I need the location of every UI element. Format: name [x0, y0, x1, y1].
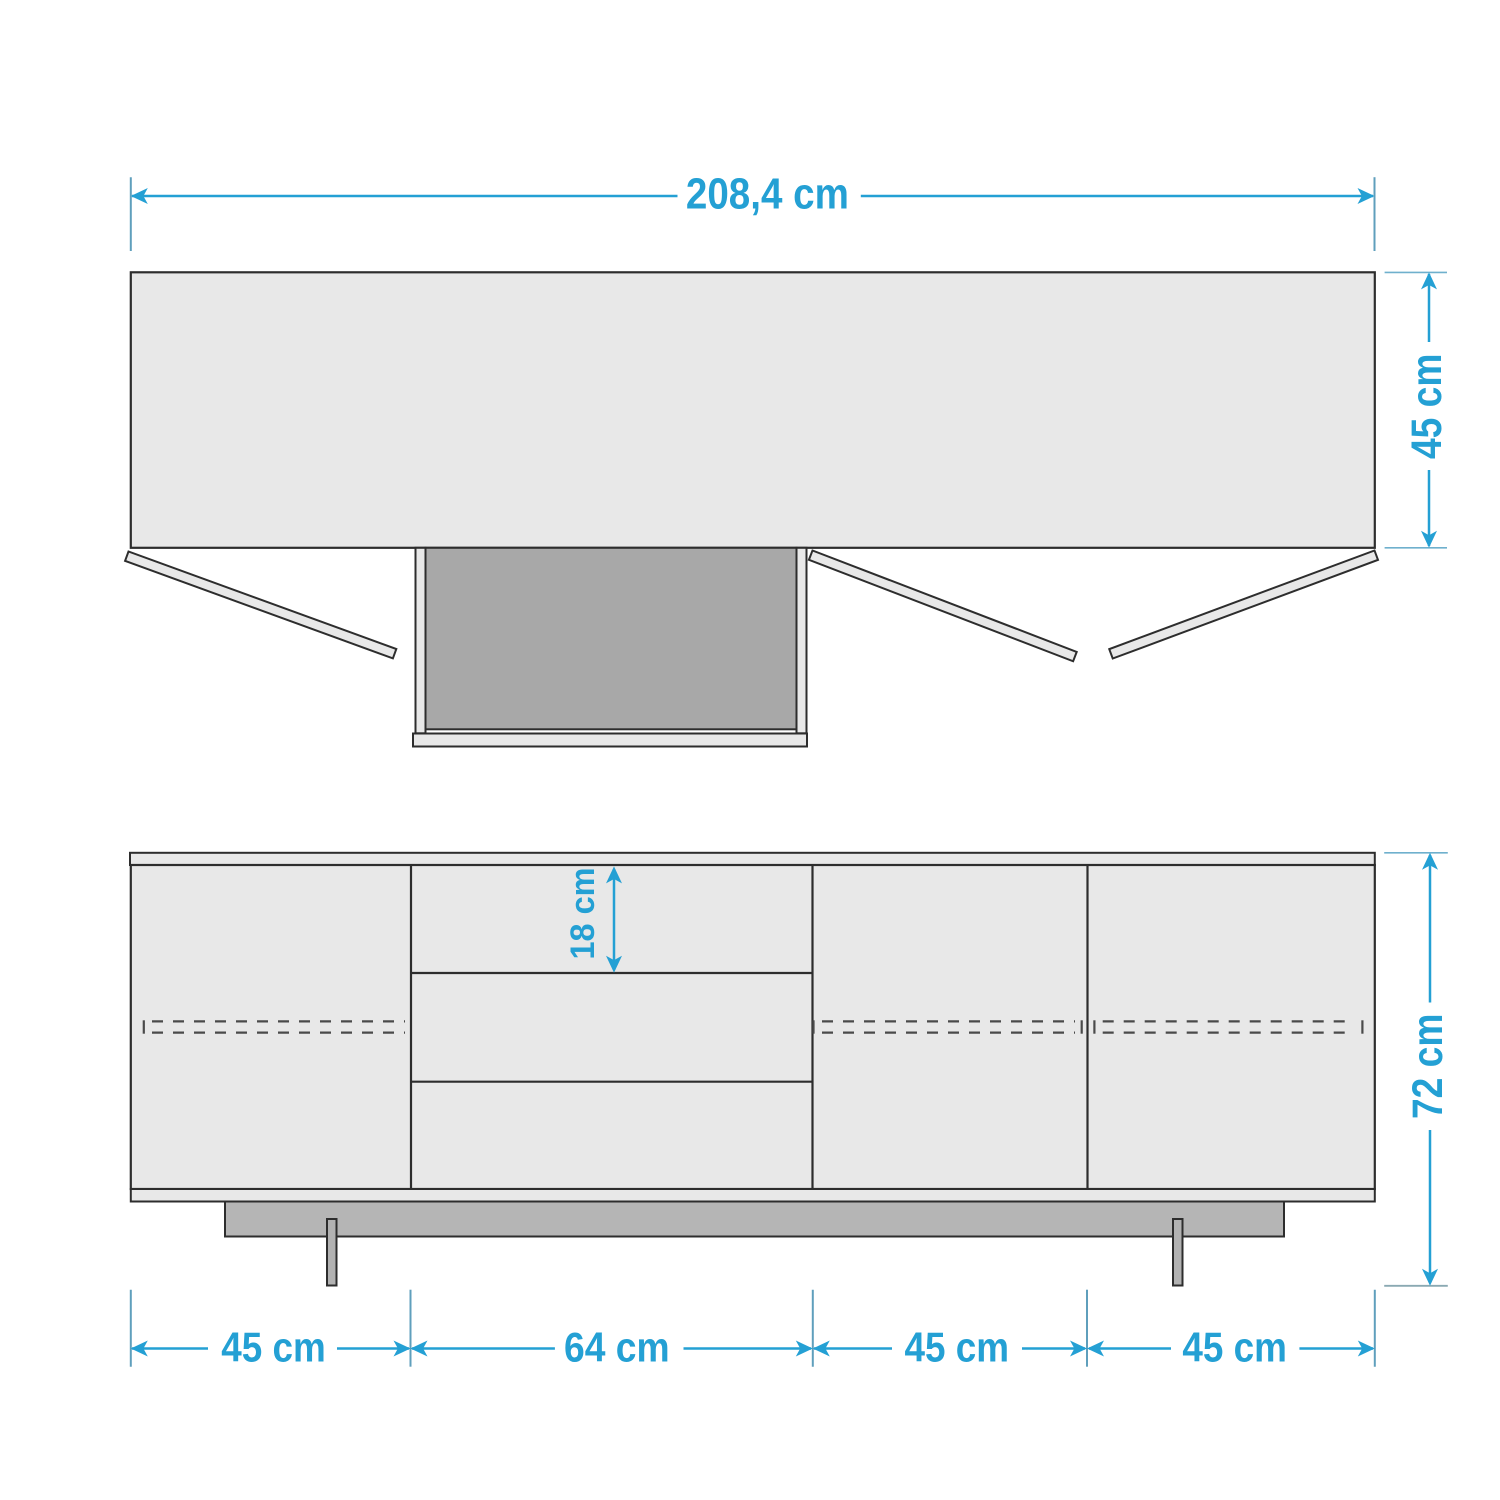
svg-text:64 cm: 64 cm — [564, 1324, 670, 1371]
svg-text:208,4 cm: 208,4 cm — [686, 169, 849, 218]
svg-text:45 cm: 45 cm — [1182, 1324, 1287, 1371]
svg-text:18 cm: 18 cm — [564, 868, 602, 960]
svg-text:45 cm: 45 cm — [221, 1324, 326, 1371]
svg-text:45 cm: 45 cm — [1403, 354, 1451, 460]
svg-text:72 cm: 72 cm — [1404, 1014, 1452, 1120]
svg-text:45 cm: 45 cm — [905, 1324, 1010, 1371]
